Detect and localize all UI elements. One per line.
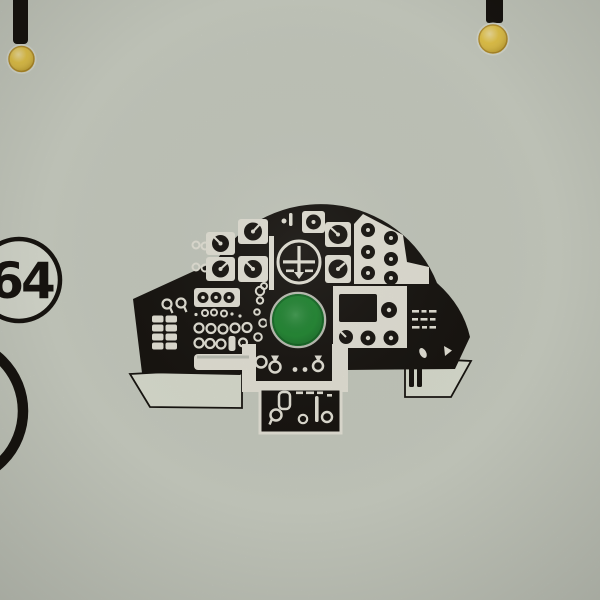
vignette bbox=[0, 0, 600, 600]
decal-sheet-photo: 64 bbox=[0, 0, 600, 600]
decal-sheet-canvas: 64 bbox=[0, 0, 600, 600]
